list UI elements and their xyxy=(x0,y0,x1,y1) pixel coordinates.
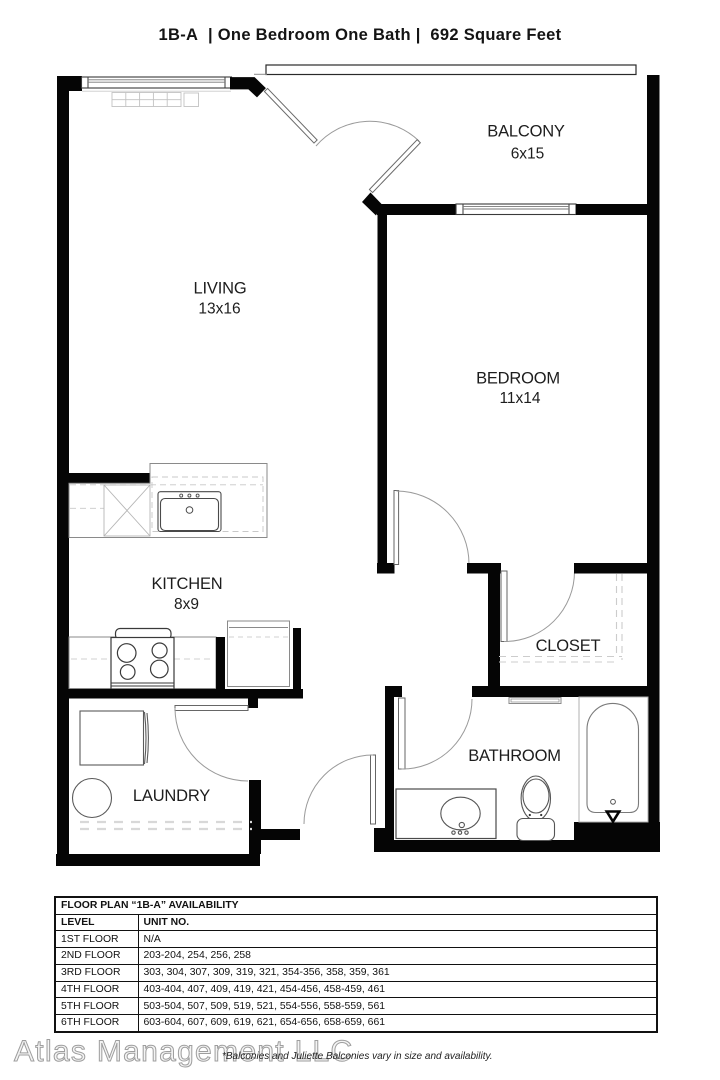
svg-text:6x15: 6x15 xyxy=(511,146,545,163)
svg-text:LIVING: LIVING xyxy=(194,280,247,298)
svg-text:8x9: 8x9 xyxy=(174,596,199,613)
svg-text:KITCHEN: KITCHEN xyxy=(151,575,222,593)
svg-text:LAUNDRY: LAUNDRY xyxy=(133,787,210,805)
svg-text:BATHROOM: BATHROOM xyxy=(468,747,561,765)
svg-text:BALCONY: BALCONY xyxy=(487,123,565,141)
svg-text:BEDROOM: BEDROOM xyxy=(476,370,560,388)
svg-text:11x14: 11x14 xyxy=(499,390,540,407)
svg-text:CLOSET: CLOSET xyxy=(536,637,601,655)
svg-text:13x16: 13x16 xyxy=(198,301,240,318)
